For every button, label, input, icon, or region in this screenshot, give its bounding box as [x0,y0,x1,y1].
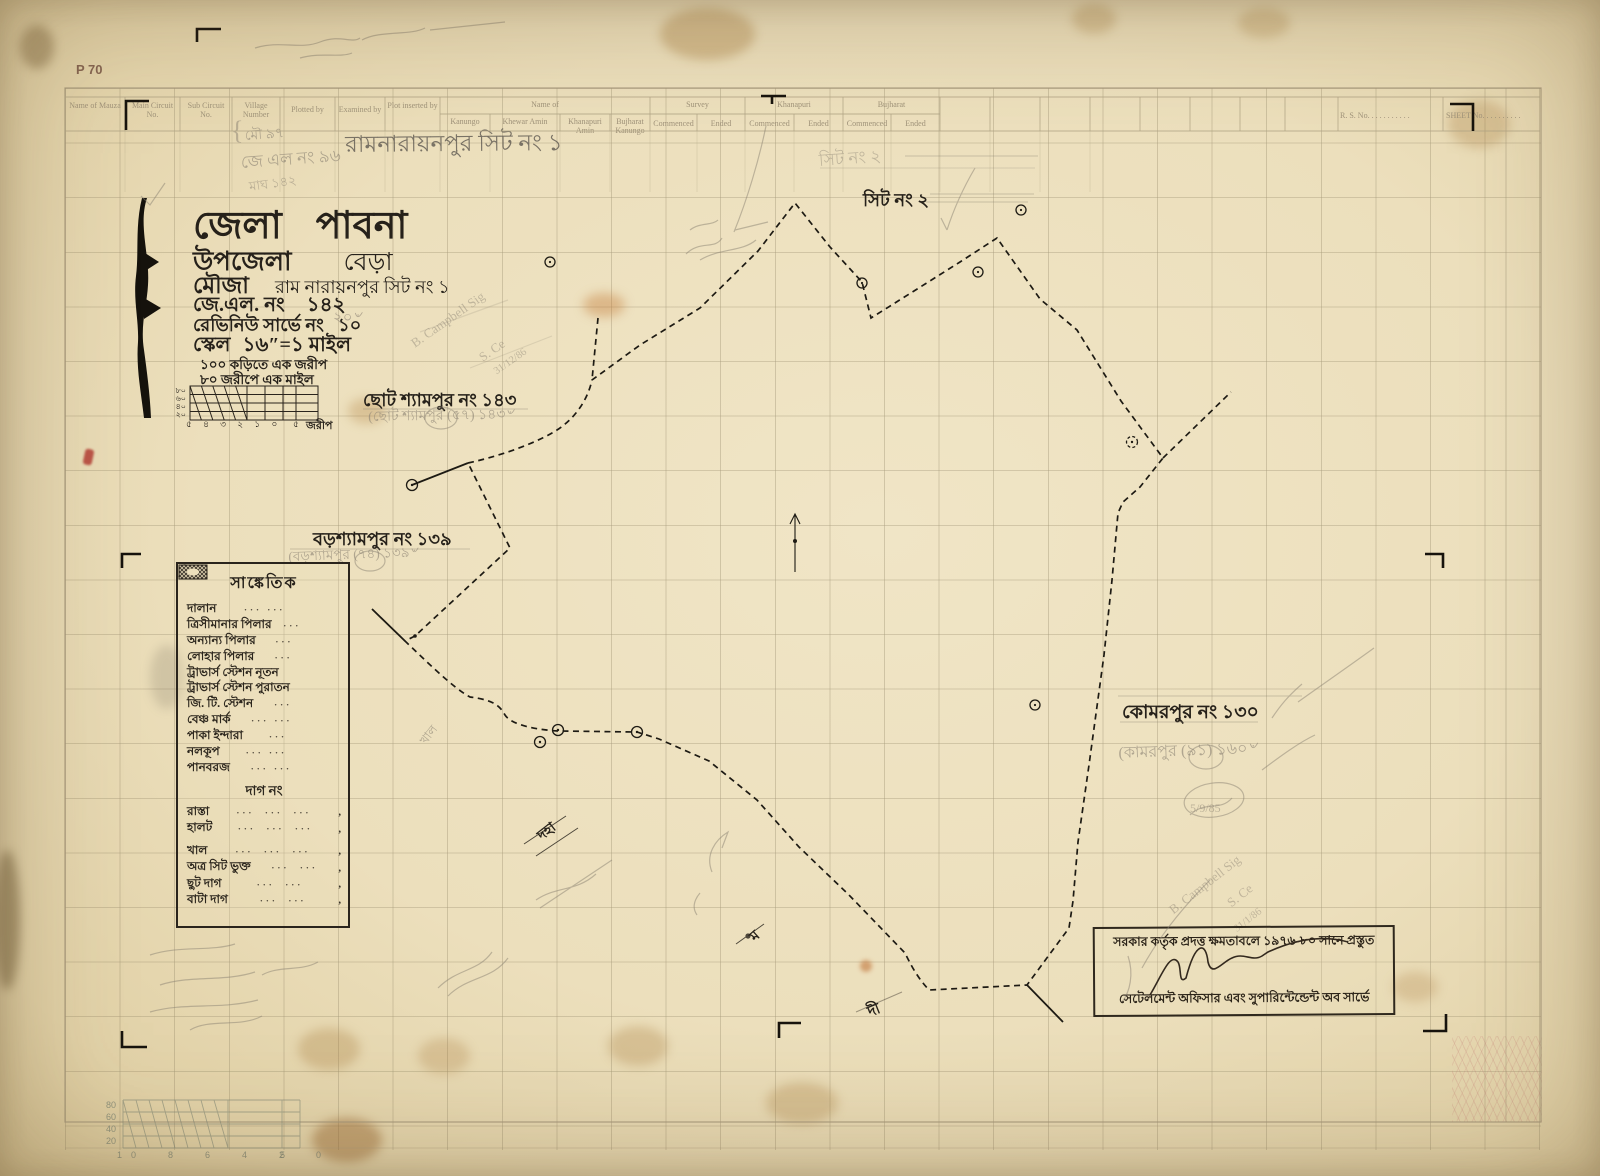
registration-marks [122,29,1473,1047]
map-drawing [0,0,1600,1176]
margin-scale [123,1100,300,1148]
sheet-frame [65,88,1541,1148]
survey-mark [790,514,800,572]
scale-bar [190,386,318,420]
pencil-tick [1122,956,1131,1002]
form-ruling [65,97,1540,192]
signature [1150,939,1348,995]
binding-mark [135,198,161,418]
boundary-solid-spur [372,463,1063,1022]
traverse-station-icons [407,205,1138,748]
label-ticks [524,816,902,1012]
mouza-boundary [372,203,1231,1022]
pencil-scribbles [141,22,1374,1030]
